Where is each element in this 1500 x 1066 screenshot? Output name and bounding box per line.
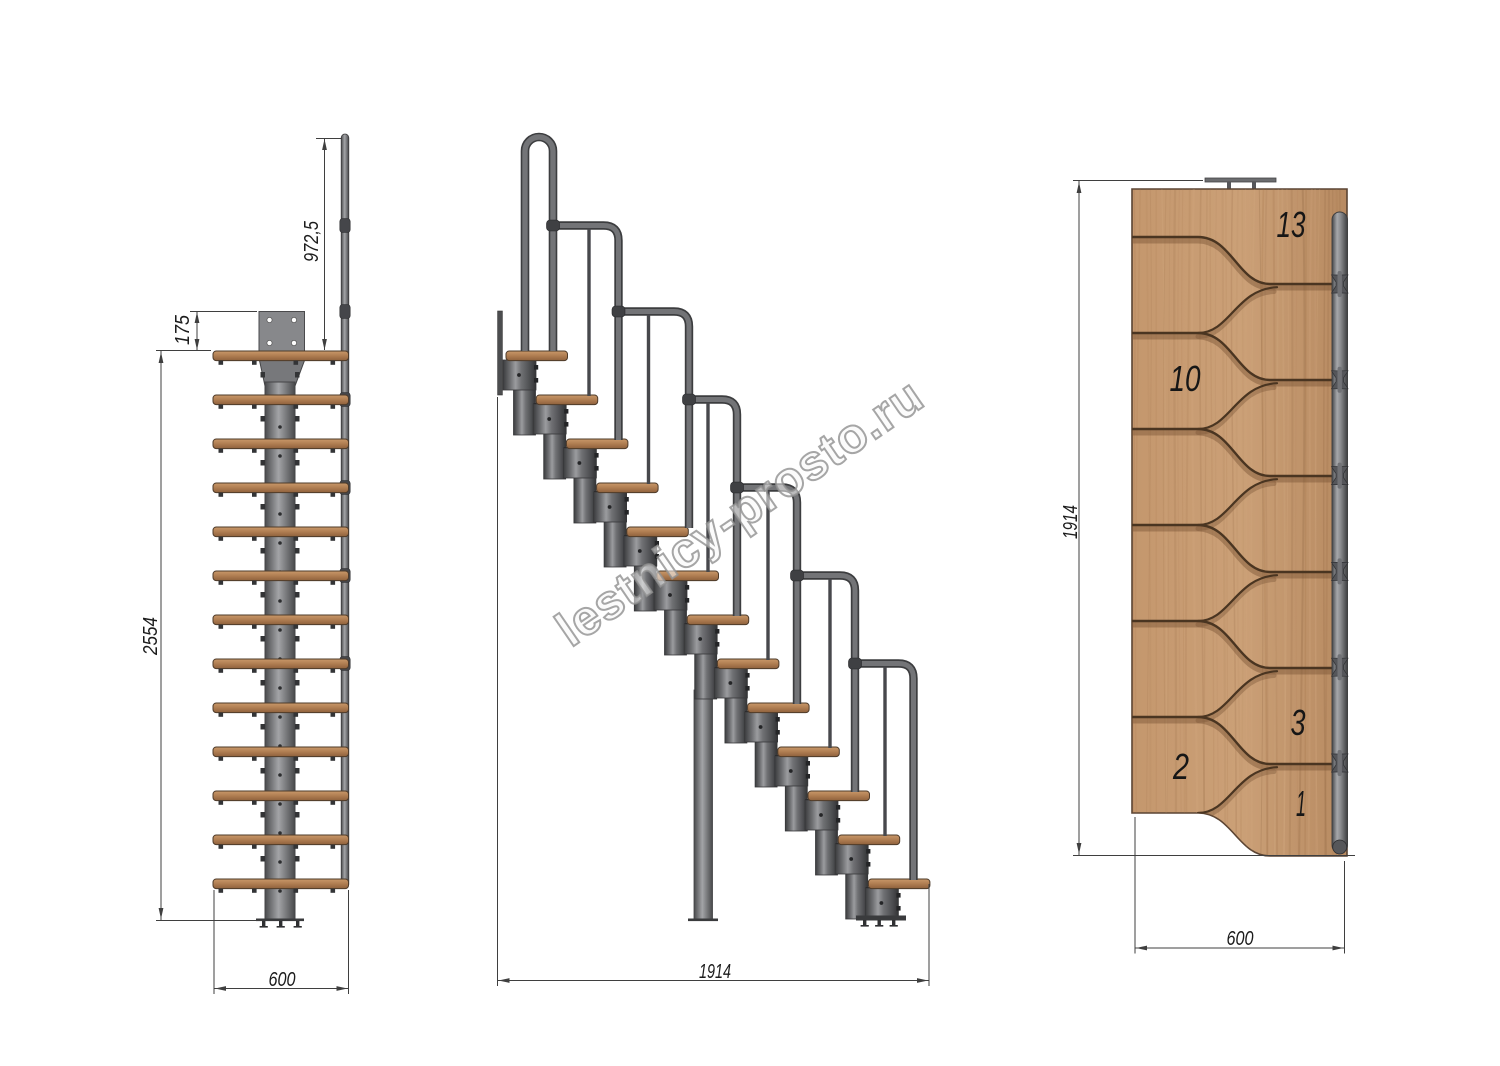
svg-text:3: 3 (1291, 702, 1306, 743)
svg-text:1: 1 (1296, 783, 1306, 824)
svg-text:1914: 1914 (1060, 505, 1082, 539)
svg-text:13: 13 (1277, 204, 1306, 245)
svg-text:2554: 2554 (140, 617, 162, 656)
svg-text:175: 175 (172, 314, 194, 345)
svg-text:2: 2 (1172, 746, 1189, 787)
svg-text:600: 600 (1227, 928, 1254, 950)
svg-text:1914: 1914 (699, 961, 731, 983)
svg-text:10: 10 (1170, 358, 1201, 399)
svg-text:600: 600 (269, 969, 296, 991)
svg-text:972,5: 972,5 (301, 220, 323, 262)
